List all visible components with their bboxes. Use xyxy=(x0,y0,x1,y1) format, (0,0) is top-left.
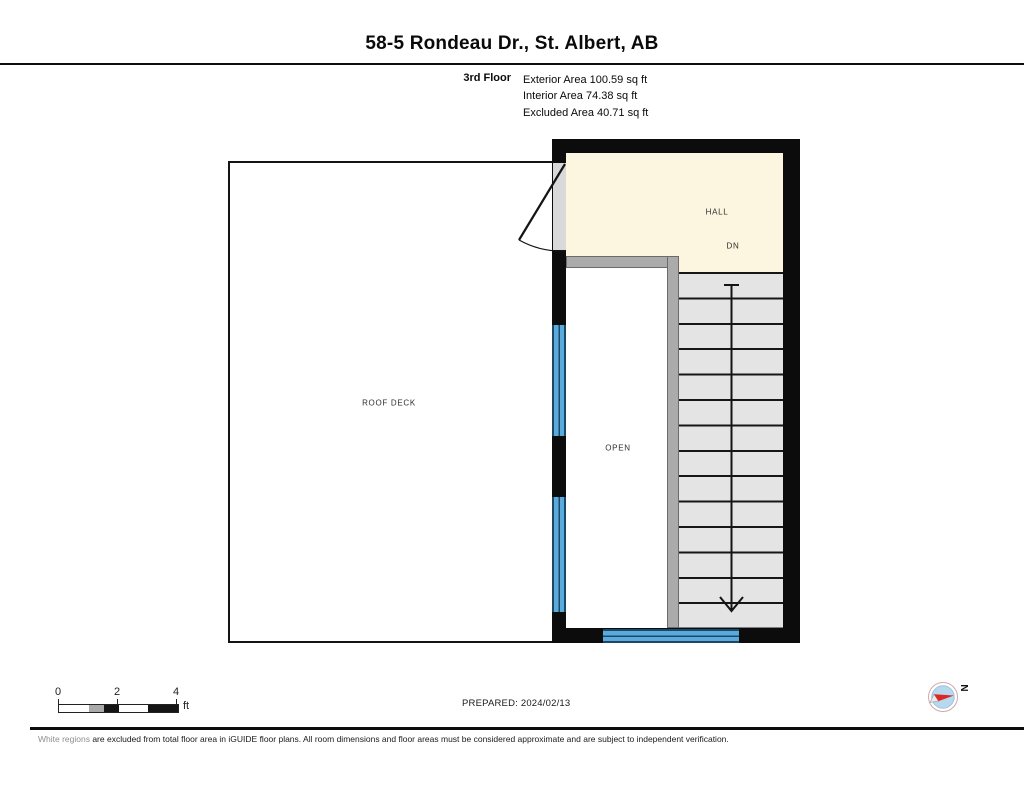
scale-segment xyxy=(89,705,104,712)
window-left-lower xyxy=(552,497,566,612)
scale-bar xyxy=(58,704,179,713)
scale-segment xyxy=(59,705,89,712)
page-title: 58-5 Rondeau Dr., St. Albert, AB xyxy=(0,33,1024,55)
roof-deck-label: ROOF DECK xyxy=(362,399,416,408)
scale-segment xyxy=(148,705,178,712)
scale-segment xyxy=(119,705,149,712)
disclaimer-lead: White regions xyxy=(38,734,90,744)
door-swing-icon xyxy=(500,150,580,260)
compass-north-letter: N xyxy=(958,684,969,691)
disclaimer-text: White regions are excluded from total fl… xyxy=(38,734,998,744)
header-divider xyxy=(0,63,1024,65)
stairs-down-label: DN xyxy=(727,242,740,251)
floor-area-stats: Exterior Area 100.59 sq ft Interior Area… xyxy=(523,72,648,121)
scale-tick-2: 2 xyxy=(114,686,120,698)
window-left-upper xyxy=(552,325,566,436)
exterior-area-value: Exterior Area 100.59 sq ft xyxy=(523,72,648,88)
floor-plan-page: 58-5 Rondeau Dr., St. Albert, AB 3rd Flo… xyxy=(0,0,1024,791)
disclaimer-body: are excluded from total floor area in iG… xyxy=(90,734,729,744)
interior-wall-vertical xyxy=(667,256,679,628)
open-label: OPEN xyxy=(605,444,630,453)
scale-tick-4: 4 xyxy=(173,686,179,698)
prepared-date: PREPARED: 2024/02/13 xyxy=(462,698,570,709)
excluded-area-value: Excluded Area 40.71 sq ft xyxy=(523,105,648,121)
interior-wall-horizontal xyxy=(566,256,679,268)
floor-name-label: 3rd Floor xyxy=(0,72,511,84)
scale-tick-0: 0 xyxy=(55,686,61,698)
stair-direction-arrow-icon xyxy=(679,272,783,628)
scale-segment xyxy=(104,705,119,712)
compass-icon: N xyxy=(918,673,972,721)
interior-area-value: Interior Area 74.38 sq ft xyxy=(523,88,648,104)
scale-unit-label: ft xyxy=(183,700,189,712)
footer-divider xyxy=(30,727,1024,730)
window-bottom xyxy=(603,629,739,643)
hall-label: HALL xyxy=(706,208,729,217)
hall-area xyxy=(566,153,783,272)
